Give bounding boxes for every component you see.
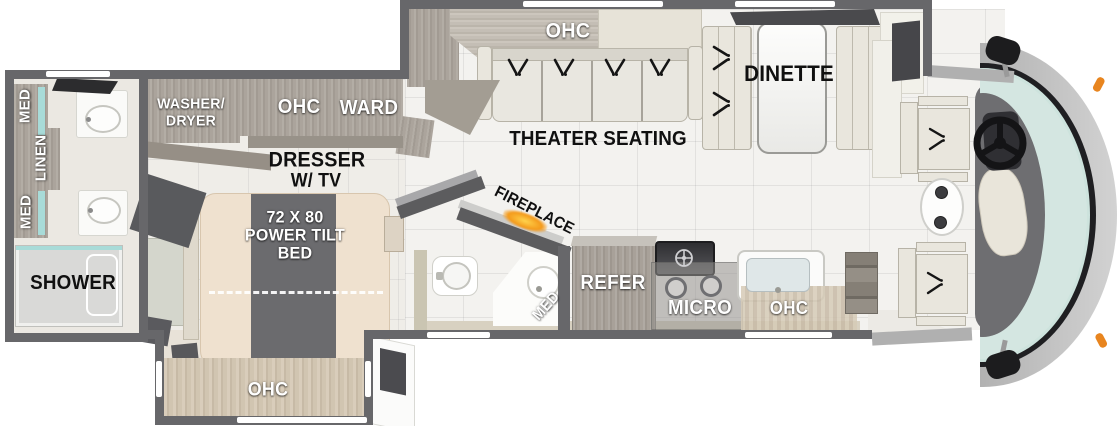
wall-main-left-connector — [400, 0, 409, 79]
window-marker — [745, 332, 832, 338]
label-theater-seating: THEATER SEATING — [509, 129, 687, 149]
window-marker — [427, 332, 490, 338]
recline-indicator-icon — [603, 58, 627, 78]
label-washer-dryer-1: WASHER/ — [157, 97, 225, 112]
label-washer-dryer-2: DRYER — [166, 114, 216, 129]
entry-steps — [845, 252, 878, 314]
label-shower: SHOWER — [30, 273, 116, 293]
label-kitchen-ohc: OHC — [770, 299, 808, 317]
recline-indicator-icon — [712, 44, 732, 72]
label-dresser-1: DRESSER — [269, 150, 366, 171]
window-marker — [237, 417, 367, 423]
label-med-lower: MED — [19, 195, 34, 229]
stove-burner-icon — [665, 277, 687, 299]
stove-burner-icon — [700, 275, 722, 297]
label-micro: MICRO — [668, 298, 732, 318]
bed-fold-line — [209, 291, 383, 294]
faucet-icon — [775, 287, 781, 293]
passenger-seat-armrest — [916, 242, 966, 252]
driver-seat-armrest — [918, 96, 968, 106]
toilet-tank — [436, 272, 443, 280]
refer-top-face — [571, 236, 657, 246]
bedroom-cabinet-shadow-face — [248, 136, 403, 148]
window-marker — [735, 1, 835, 7]
window-marker — [46, 71, 110, 77]
label-ward: WARD — [340, 98, 399, 118]
toilet-bowl — [442, 262, 471, 290]
label-bedroom-ohc: OHC — [278, 97, 321, 117]
label-slide-ohc: OHC — [248, 381, 289, 400]
microwave-fan-icon — [674, 248, 694, 268]
wall-bedroom-top — [139, 70, 409, 79]
passenger-seat-back — [898, 248, 916, 318]
wall-halfbath-kitchen — [558, 246, 570, 332]
recline-indicator-icon — [928, 126, 948, 152]
label-linen: LINEN — [34, 135, 49, 182]
recline-indicator-icon — [506, 58, 530, 78]
label-dresser-2: W/ TV — [291, 172, 342, 191]
floorplan-canvas: MED LINEN MED SHOWER WASHER/ DRYER OHC W… — [0, 0, 1120, 426]
label-bed-1: 72 X 80 — [266, 209, 323, 226]
front-tv — [892, 21, 920, 82]
halfbath-side-cabinet — [414, 250, 427, 330]
faucet-icon — [536, 286, 542, 292]
label-living-ohc: OHC — [546, 21, 591, 42]
window-marker — [156, 361, 162, 397]
steering-wheel-icon — [973, 116, 1027, 170]
passenger-seat-armrest — [916, 316, 966, 326]
window-marker — [523, 1, 663, 7]
recline-indicator-icon — [926, 270, 946, 296]
cupholder-icon — [934, 216, 947, 229]
stove-cooktop — [651, 262, 743, 330]
label-bed-2: POWER TILT — [245, 227, 345, 244]
nightstand-right — [384, 216, 404, 252]
label-refer: REFER — [580, 273, 645, 293]
marker-light-icon — [1094, 332, 1108, 349]
label-dinette: DINETTE — [744, 63, 834, 85]
window-marker — [365, 361, 371, 397]
label-med-upper: MED — [18, 89, 33, 123]
recline-indicator-icon — [552, 58, 576, 78]
wall-cab-step — [923, 0, 932, 76]
wall-main-top — [402, 0, 932, 9]
dinette-table — [757, 22, 827, 154]
recline-indicator-icon — [648, 58, 672, 78]
driver-seat-back — [900, 102, 918, 174]
slide-3d-tv — [380, 348, 406, 396]
theater-armrest-right — [688, 46, 703, 120]
recline-indicator-icon — [712, 90, 732, 118]
marker-light-icon — [1092, 76, 1106, 93]
label-bed-3: BED — [278, 245, 313, 262]
cupholder-icon — [935, 186, 948, 199]
